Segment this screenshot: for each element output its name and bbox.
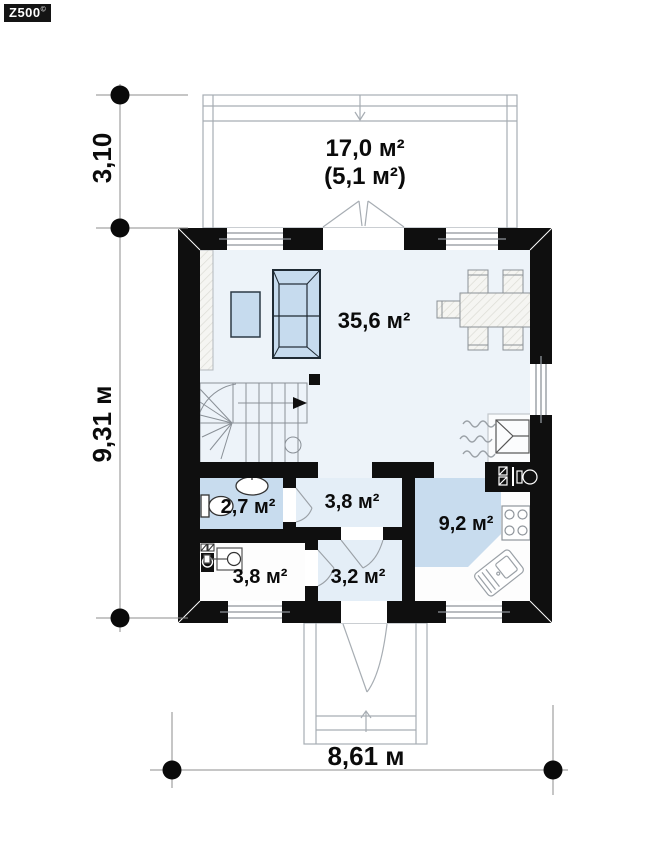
stove-icon (502, 506, 530, 540)
coffee-table (231, 292, 260, 337)
window-top-right (438, 228, 506, 250)
dimension-label-terrace-depth: 3,10 (89, 133, 115, 184)
room-label-terrace-area: 17,0 м² (325, 137, 404, 161)
dining-table (460, 293, 532, 327)
room-label-bathroom: 2,7 м² (221, 497, 276, 517)
dimension-label-house-width: 8,61 м (327, 743, 404, 769)
window-top-left (219, 228, 291, 250)
room-label-hall: 3,8 м² (325, 492, 380, 512)
room-label-terrace-area-secondary: (5,1 м²) (324, 165, 406, 189)
window-bottom-left (220, 601, 290, 623)
room-label-kitchen: 9,2 м² (439, 514, 494, 534)
room-label-entry: 3,2 м² (331, 567, 386, 587)
sofa (273, 270, 320, 358)
dimension-label-house-depth: 9,31 м (89, 385, 115, 462)
window-right (530, 356, 552, 423)
french-door-opening (323, 228, 404, 250)
chimney-block (485, 462, 552, 492)
stair-post (309, 374, 320, 385)
porch-outline (304, 623, 427, 744)
toilet-icon (201, 495, 209, 517)
entry-door-opening (341, 601, 387, 623)
room-label-living: 35,6 м² (338, 310, 411, 332)
room-label-utility: 3,8 м² (233, 567, 288, 587)
window-bottom-right (438, 601, 510, 623)
french-door-swing (323, 201, 404, 227)
floorplan-canvas: Z500© (0, 0, 655, 846)
entry-door-swing (343, 624, 387, 692)
